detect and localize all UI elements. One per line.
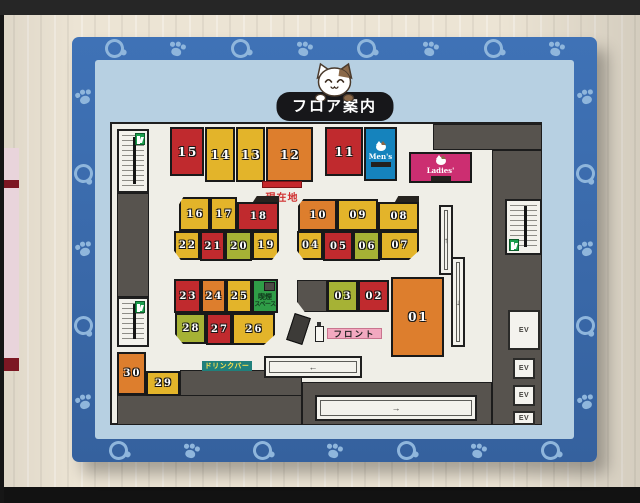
room-23-label: 23 (178, 291, 198, 302)
room-22: 22 (174, 231, 200, 260)
room-28-label: 28 (181, 323, 201, 334)
elevator-label: EV (519, 365, 529, 372)
room-05-label: 05 (328, 241, 348, 252)
toy-ball-icon (251, 439, 275, 463)
room-17: 17 (210, 197, 237, 231)
smoking-area-icon (264, 282, 275, 291)
room-01: 01 (391, 277, 444, 357)
paw-print-icon (74, 88, 94, 106)
paw-print-icon (294, 40, 313, 57)
paw-print-icon (576, 88, 596, 106)
paw-print-icon (325, 442, 344, 459)
room-27: 27 (206, 313, 232, 345)
paw-print-icon (168, 40, 187, 57)
room-18: 18 (237, 202, 279, 231)
escalator-steps (320, 400, 472, 416)
elevator-4: EV (513, 411, 535, 425)
elevator-2: EV (513, 358, 535, 379)
room-11-label: 11 (333, 145, 356, 159)
room-07: 07 (380, 231, 419, 260)
paw-print-icon (576, 240, 596, 258)
toy-ball-icon (574, 314, 597, 337)
toy-ball-icon (481, 37, 505, 61)
room-20: 20 (225, 231, 252, 261)
room-17-label: 17 (214, 209, 234, 220)
room-04: 04 (297, 231, 323, 260)
emergency-exit-icon (135, 133, 145, 145)
room-22-label: 22 (177, 240, 197, 251)
ladies-restroom: Ladies' (409, 152, 472, 183)
elevator-1: EV (508, 310, 540, 350)
front-desk-label: フロント (327, 328, 382, 339)
ladies-badge (431, 176, 451, 181)
room-24-label: 24 (204, 291, 224, 302)
stairwell-top-left (117, 129, 149, 193)
escalator-steps (456, 262, 460, 342)
photo-of-floor-guide-sign: フロア案内 (0, 0, 640, 503)
smoking-line1: 喫煙 (254, 294, 276, 302)
paw-print-icon (469, 442, 488, 459)
stairs-rail (524, 206, 527, 247)
toy-ball-icon (72, 314, 95, 337)
room-26: 26 (232, 313, 275, 345)
toy-ball-icon (229, 37, 253, 61)
room-16-label: 16 (185, 209, 205, 220)
room-12-label: 12 (278, 148, 301, 162)
room-25: 25 (226, 279, 252, 313)
room-14-label: 14 (209, 148, 232, 162)
room-25-label: 25 (229, 291, 249, 302)
cat-face-icon (435, 155, 447, 165)
wall-right-column (492, 150, 542, 425)
stairwell-bottom-left (117, 297, 149, 347)
room-14: 14 (205, 127, 235, 182)
room-27-label: 27 (209, 324, 229, 335)
room-09-label: 09 (348, 210, 368, 221)
paw-print-icon (74, 393, 94, 411)
room-05: 05 (323, 231, 353, 261)
room-23: 23 (174, 279, 201, 313)
room-16: 16 (179, 197, 210, 231)
room-26-label: 26 (244, 324, 264, 335)
elevator-label: EV (519, 415, 529, 422)
elevator-label: EV (519, 392, 529, 399)
front-counter (286, 313, 311, 345)
photo-edge-top (0, 0, 640, 15)
cat-mascot-icon (308, 61, 360, 101)
floor-plan: 15 14 13 12 11 Men's Ladies' 現在 (110, 122, 542, 425)
frame-left (72, 60, 95, 439)
toy-ball-icon (538, 439, 562, 463)
paw-print-icon (547, 40, 566, 57)
room-15: 15 (170, 127, 204, 176)
vending-machine (315, 326, 324, 342)
room-04-label: 04 (300, 240, 320, 251)
room-08-label: 08 (389, 211, 409, 222)
room-01-label: 01 (406, 310, 429, 324)
room-07-label: 07 (390, 240, 410, 251)
wall-top-right (433, 124, 542, 150)
board-inner: フロア案内 (95, 60, 574, 439)
room-10: 10 (298, 199, 337, 231)
toy-ball-icon (394, 439, 418, 463)
room-09: 09 (337, 199, 378, 231)
stairwell-right (505, 199, 542, 255)
room-28: 28 (175, 313, 206, 344)
wall-left (117, 193, 149, 297)
room-06-label: 06 (357, 241, 377, 252)
photo-edge-left (0, 15, 4, 503)
toy-ball-icon (107, 439, 131, 463)
mens-restroom: Men's (364, 127, 397, 181)
room-30: 30 (117, 352, 146, 395)
frame-right (574, 60, 597, 439)
paw-print-icon (74, 240, 94, 258)
room-30-label: 30 (122, 368, 142, 379)
smoking-space: 喫煙 スペース (252, 279, 278, 313)
escalator-steps (269, 361, 357, 373)
toy-ball-icon (72, 162, 95, 185)
drink-bar-label: ドリンクバー (202, 361, 252, 371)
toy-ball-icon (355, 37, 379, 61)
room-19: 19 (252, 231, 279, 260)
escalator-lower (315, 395, 477, 421)
ladies-label: Ladies' (427, 166, 455, 175)
mens-label: Men's (369, 152, 392, 161)
mens-badge (371, 162, 391, 167)
escalator-down (451, 257, 465, 347)
cat-face-icon (375, 141, 387, 151)
emergency-exit-icon (509, 239, 519, 251)
room-21-label: 21 (203, 241, 223, 252)
title-group: フロア案内 (276, 61, 393, 121)
room-21: 21 (200, 231, 225, 261)
room-29-label: 29 (153, 378, 173, 389)
room-19-label: 19 (256, 240, 276, 251)
floor-guide-board: フロア案内 (72, 37, 597, 462)
cat-ear (380, 141, 386, 145)
room-02: 02 (358, 280, 389, 312)
room-03-label: 03 (333, 291, 353, 302)
smoking-space-label: 喫煙 スペース (254, 294, 276, 309)
elevator-label: EV (519, 327, 529, 334)
wall-service-block (297, 280, 327, 312)
escalator-steps (444, 210, 448, 270)
frame-top (82, 37, 587, 60)
elevator-3: EV (513, 385, 535, 406)
emergency-exit-icon (135, 301, 145, 313)
paw-print-icon (576, 393, 596, 411)
photo-edge-bottom (0, 487, 640, 503)
room-08: 08 (378, 202, 419, 231)
paw-print-icon (181, 442, 200, 459)
room-29: 29 (146, 371, 180, 396)
escalator-upper (264, 356, 362, 378)
room-15-label: 15 (176, 145, 199, 159)
room-12: 12 (266, 127, 313, 182)
room-03: 03 (327, 280, 358, 312)
cat-ear (440, 155, 446, 159)
room-06: 06 (353, 231, 380, 261)
toy-ball-icon (574, 162, 597, 185)
toy-ball-icon (102, 37, 126, 61)
room-11: 11 (325, 127, 363, 176)
current-location-marker (262, 181, 302, 188)
room-13-label: 13 (239, 148, 262, 162)
smoking-line2: スペース (254, 302, 276, 309)
room-10-label: 10 (308, 210, 328, 221)
paw-print-icon (420, 40, 439, 57)
room-24: 24 (201, 279, 226, 313)
room-20-label: 20 (229, 241, 249, 252)
room-13: 13 (236, 127, 265, 182)
wall-bottom-left (117, 395, 302, 425)
room-02-label: 02 (364, 291, 384, 302)
room-18-label: 18 (248, 211, 268, 222)
frame-bottom (82, 439, 587, 462)
